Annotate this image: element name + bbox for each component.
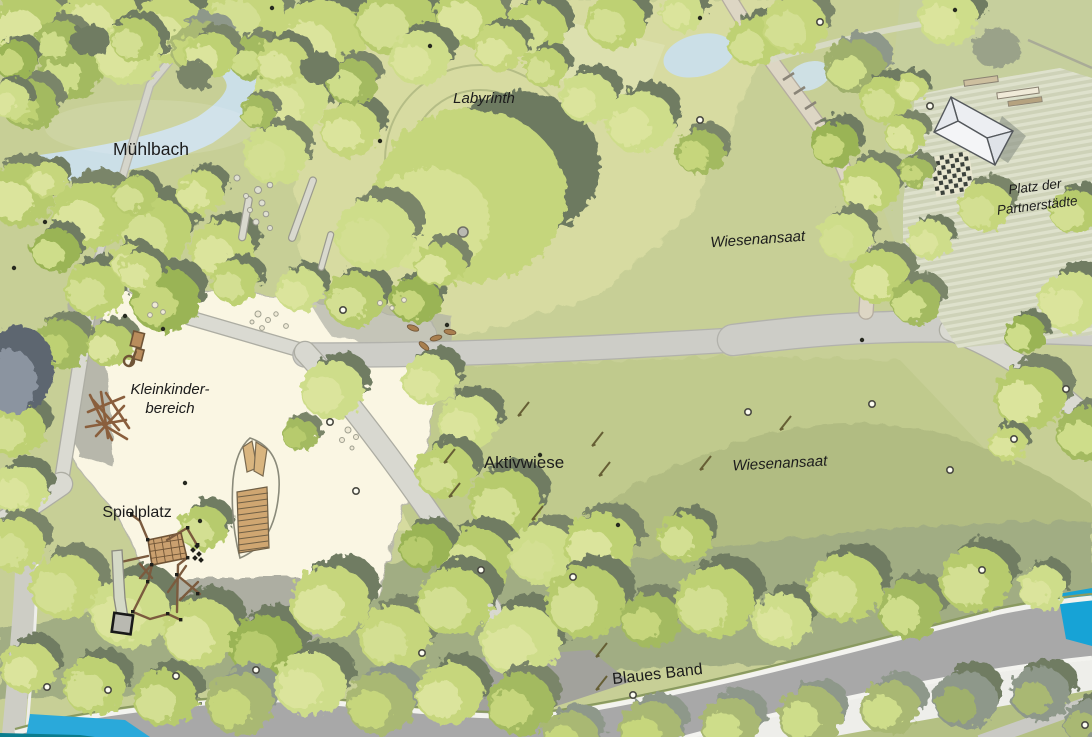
svg-text:Labyrinth: Labyrinth (453, 90, 515, 107)
svg-text:bereich: bereich (145, 400, 194, 417)
svg-text:Mühlbach: Mühlbach (113, 139, 189, 159)
svg-text:Aktivwiese: Aktivwiese (484, 453, 564, 472)
svg-text:Kleinkinder-: Kleinkinder- (131, 381, 210, 398)
svg-text:Spielplatz: Spielplatz (102, 504, 171, 521)
